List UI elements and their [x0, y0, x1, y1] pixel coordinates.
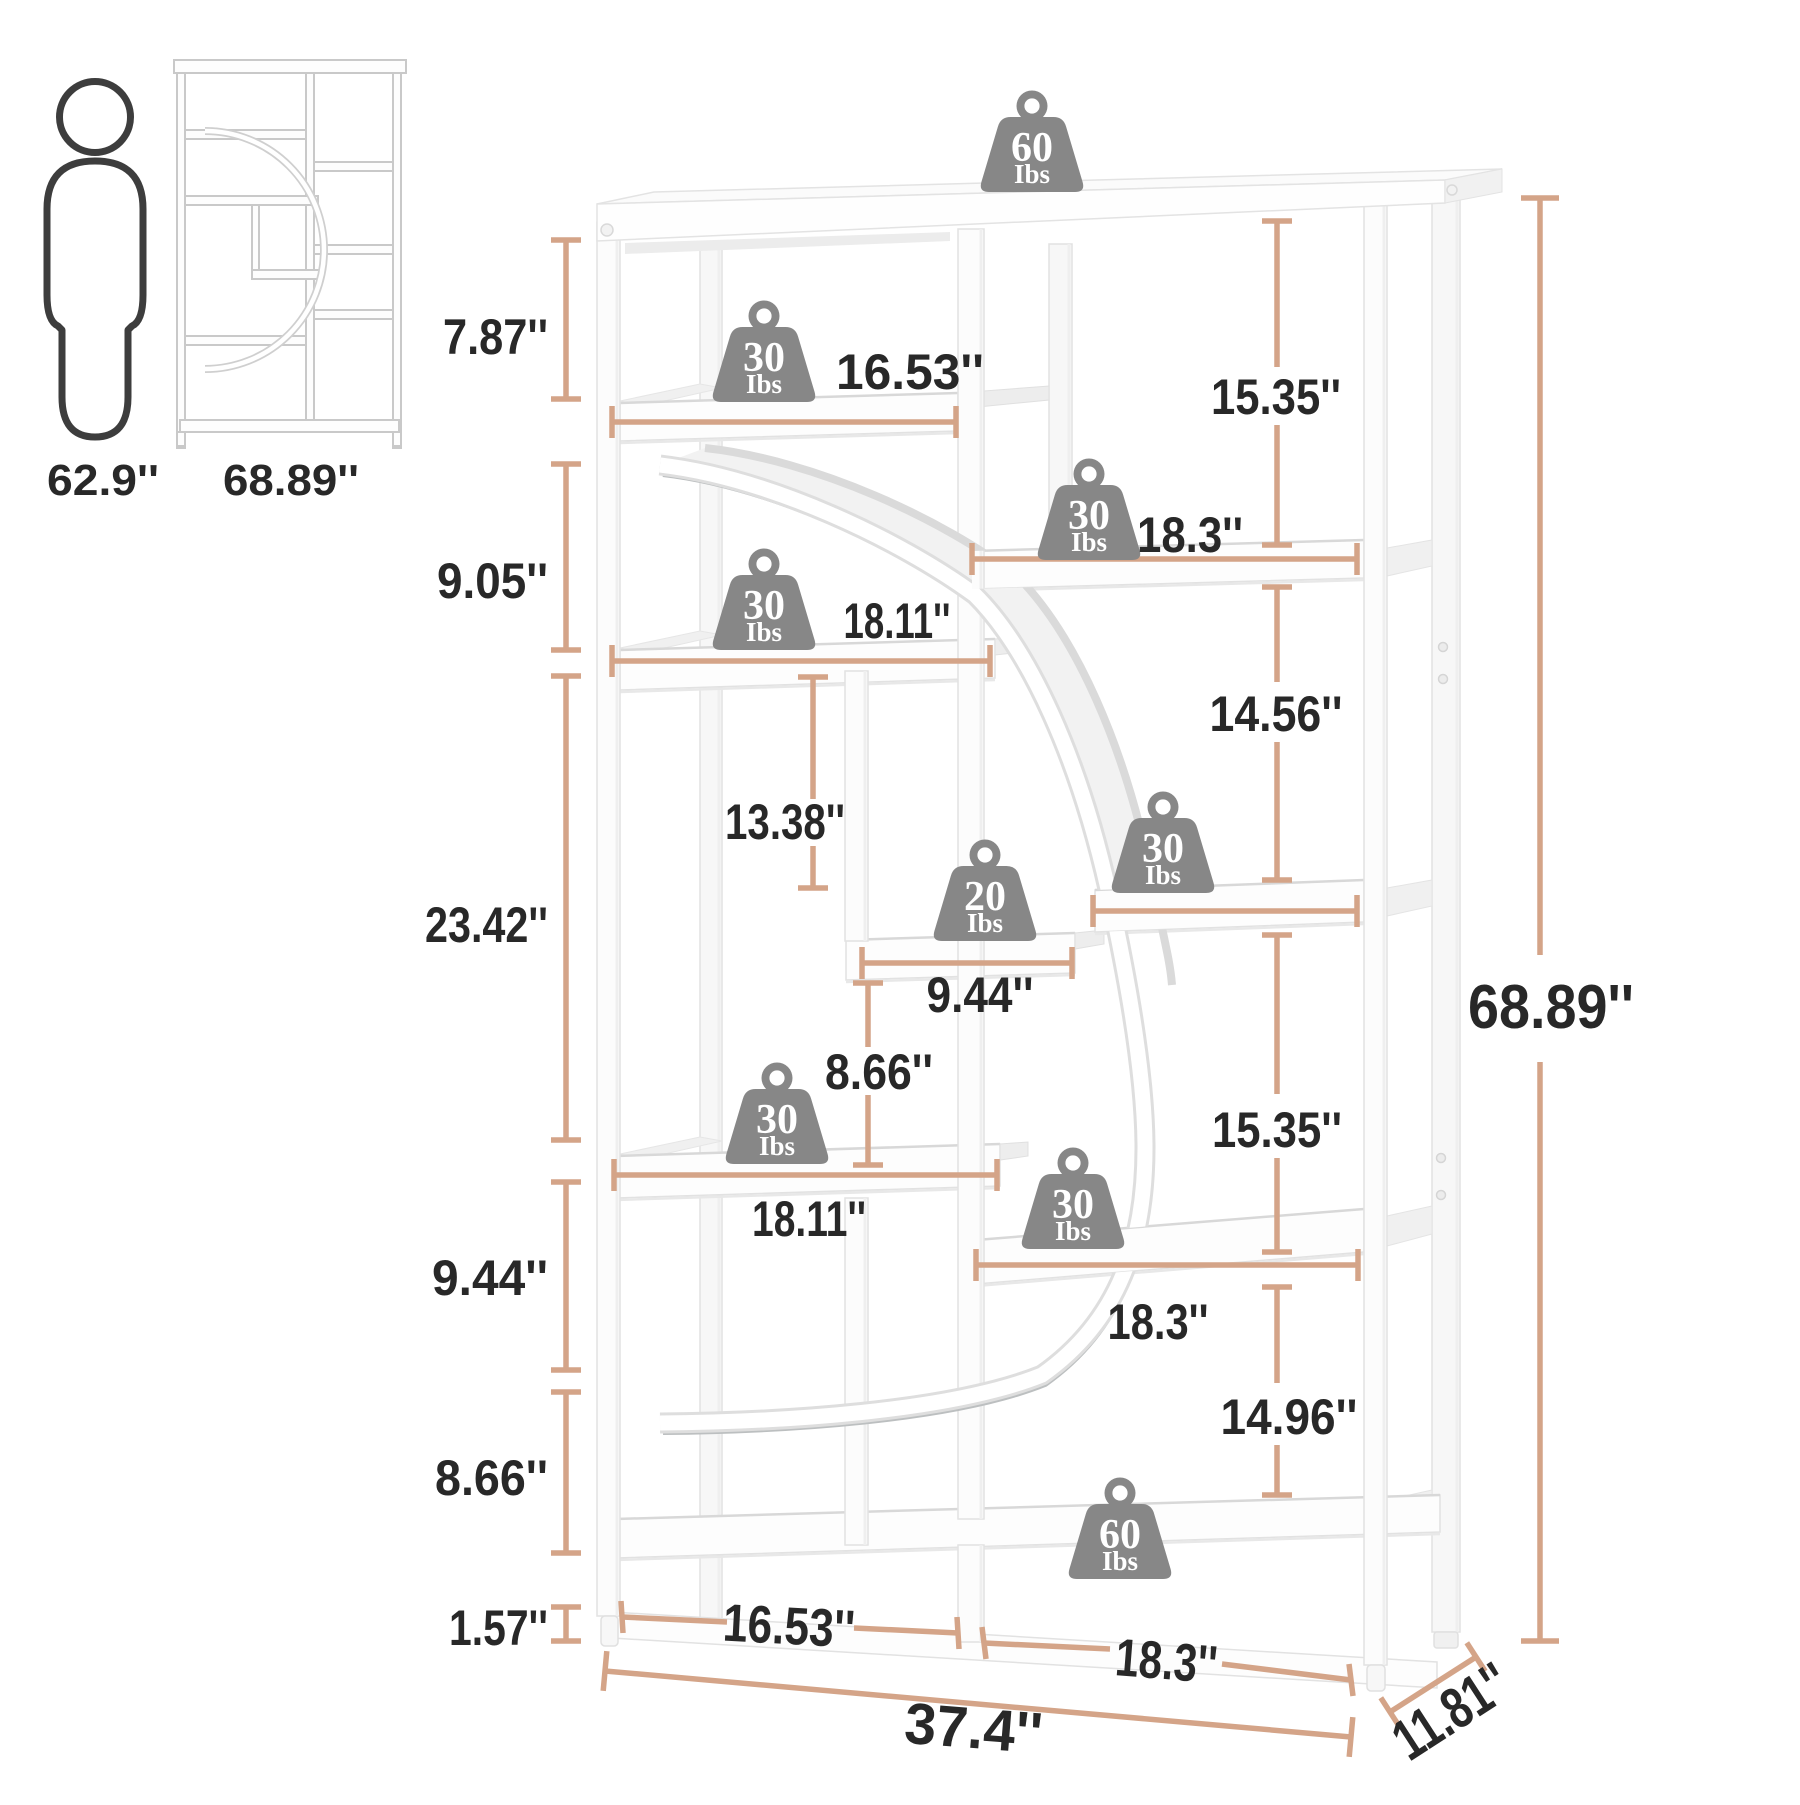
svg-text:37.4'': 37.4''	[902, 1691, 1045, 1767]
svg-text:18.3'': 18.3''	[1108, 1294, 1209, 1350]
svg-text:16.53'': 16.53''	[836, 344, 984, 400]
svg-text:15.35'': 15.35''	[1212, 1102, 1342, 1158]
svg-text:68.89'': 68.89''	[223, 456, 359, 505]
svg-text:Ibs: Ibs	[746, 617, 782, 647]
svg-text:16.53'': 16.53''	[721, 1594, 856, 1660]
svg-text:7.87'': 7.87''	[443, 309, 548, 365]
svg-text:18.11'': 18.11''	[844, 593, 951, 649]
svg-text:62.9'': 62.9''	[47, 456, 159, 505]
svg-text:Ibs: Ibs	[1102, 1546, 1138, 1576]
svg-text:8.66'': 8.66''	[825, 1044, 933, 1100]
svg-text:23.42'': 23.42''	[425, 897, 548, 953]
svg-text:18.11'': 18.11''	[752, 1191, 866, 1247]
svg-text:14.96'': 14.96''	[1221, 1389, 1358, 1445]
svg-text:Ibs: Ibs	[759, 1131, 795, 1161]
svg-text:Ibs: Ibs	[1071, 527, 1107, 557]
svg-text:18.3'': 18.3''	[1137, 507, 1243, 563]
svg-text:Ibs: Ibs	[1145, 860, 1181, 890]
svg-text:1.57'': 1.57''	[449, 1600, 548, 1656]
svg-text:Ibs: Ibs	[746, 369, 782, 399]
svg-text:8.66'': 8.66''	[435, 1450, 548, 1506]
svg-text:15.35'': 15.35''	[1211, 369, 1341, 425]
svg-text:18.3'': 18.3''	[1113, 1628, 1219, 1695]
svg-text:9.44'': 9.44''	[432, 1250, 548, 1306]
svg-text:14.56'': 14.56''	[1210, 686, 1343, 742]
svg-text:Ibs: Ibs	[1055, 1216, 1091, 1246]
svg-text:13.38'': 13.38''	[725, 794, 845, 850]
svg-text:9.44'': 9.44''	[927, 967, 1034, 1023]
svg-text:68.89'': 68.89''	[1468, 973, 1634, 1042]
svg-text:Ibs: Ibs	[967, 908, 1003, 938]
svg-text:9.05'': 9.05''	[437, 553, 548, 609]
svg-text:Ibs: Ibs	[1014, 159, 1050, 189]
